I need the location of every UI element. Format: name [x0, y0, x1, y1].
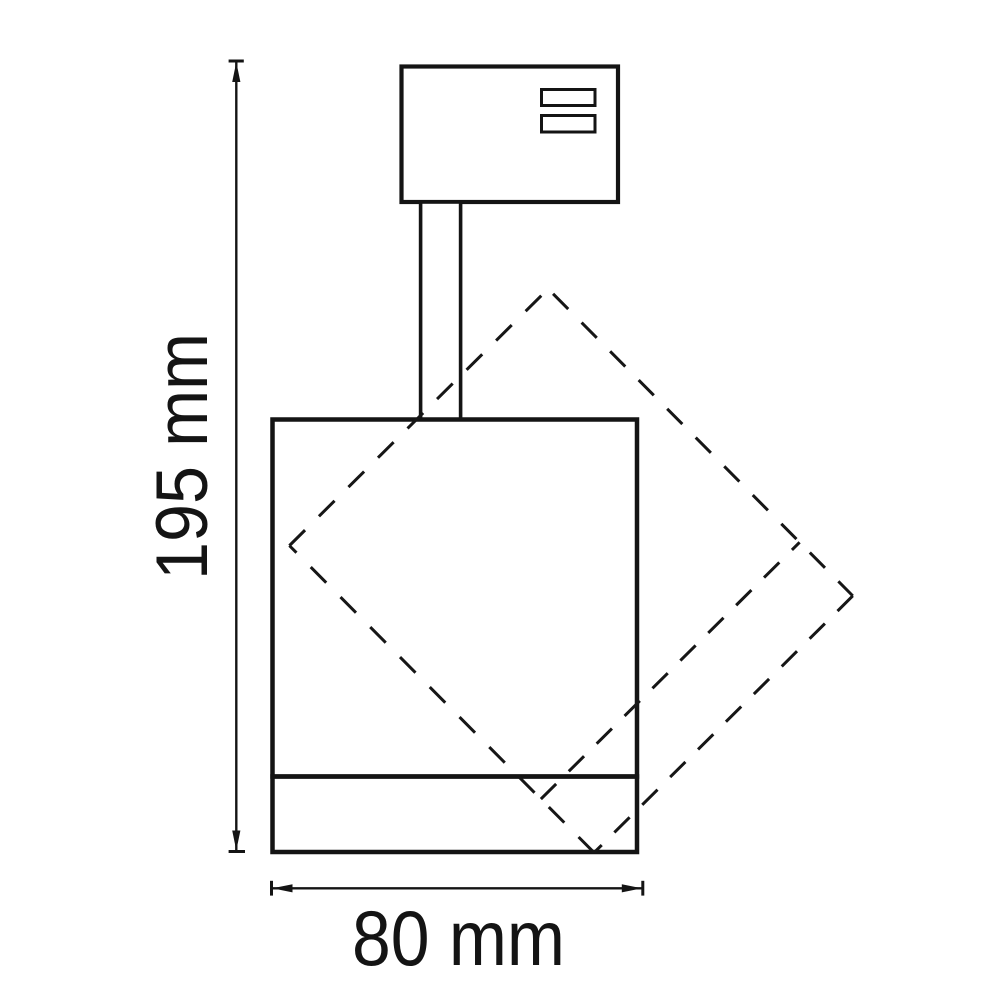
svg-text:195 mm: 195 mm: [140, 333, 223, 580]
svg-text:80 mm: 80 mm: [352, 894, 565, 982]
